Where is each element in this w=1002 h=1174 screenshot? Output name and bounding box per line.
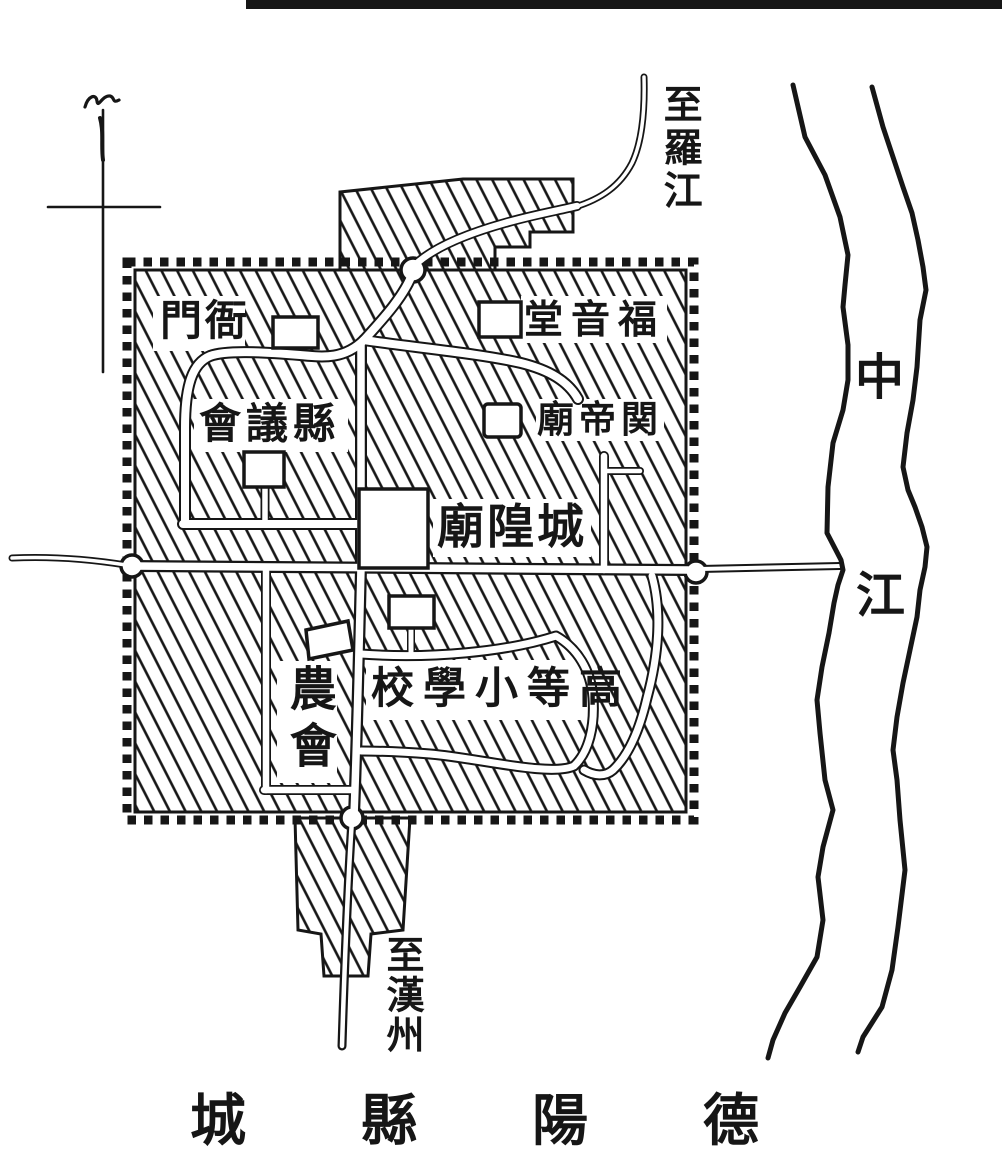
school-building xyxy=(389,596,434,628)
guandi-temple-label: 廟帝関 xyxy=(537,401,663,441)
yamen-building xyxy=(273,317,318,348)
school-label: 校學小等高 xyxy=(371,667,631,713)
river-name-char-zhong: 中 xyxy=(855,352,904,405)
to-hanzhou-label: 至漢州 xyxy=(380,935,421,1055)
gospel-hall-building xyxy=(479,302,521,337)
map-drawing xyxy=(0,0,1002,1174)
page-edge-bar xyxy=(246,0,1002,9)
county-council-building xyxy=(244,452,284,487)
guandi-temple-building xyxy=(484,404,521,437)
city-god-temple-building xyxy=(359,489,428,568)
gospel-hall-label: 堂音福 xyxy=(524,300,665,342)
city-god-temple-label: 廟隍城 xyxy=(437,503,587,554)
farmers-association-label: 農會 xyxy=(282,664,333,778)
county-council-label: 會議縣 xyxy=(199,403,340,448)
to-luojiang-label: 至羅江 xyxy=(658,84,700,213)
deyang-city-map: 門衙 會議縣 堂音福 廟帝関 廟隍城 校學小等高 農會 至羅江 至漢州 中 江 … xyxy=(0,0,1002,1174)
map-title: 城縣陽德 xyxy=(190,1092,874,1152)
river-left-bank xyxy=(768,85,848,1058)
river-name-char-jiang: 江 xyxy=(856,570,905,623)
yamen-label: 門衙 xyxy=(160,300,250,345)
